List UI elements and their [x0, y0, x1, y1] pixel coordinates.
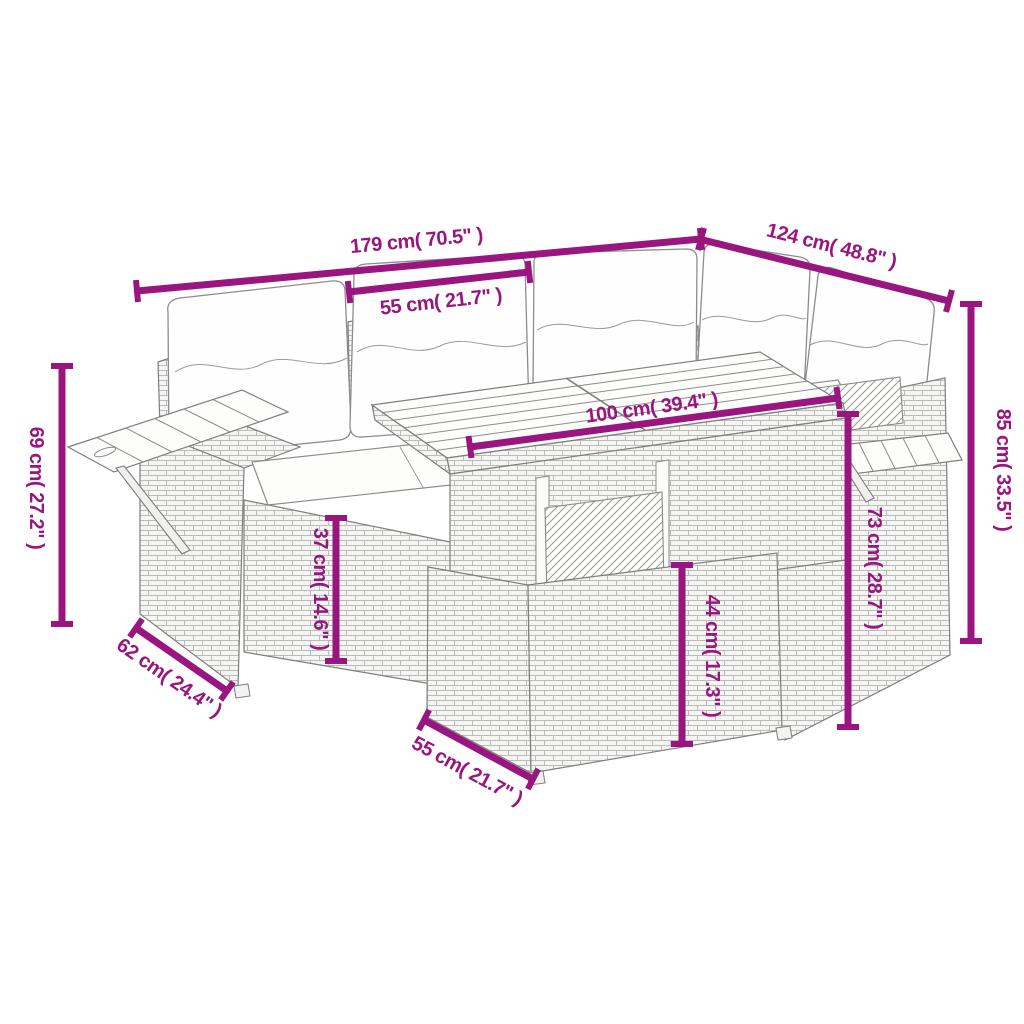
dimension-armrest-height: 69 cm( 27.2" ) — [25, 366, 73, 624]
dimension-label-table-height: 73 cm( 28.7" ) — [863, 507, 885, 630]
dimension-label-total-width: 179 cm( 70.5" ) — [349, 224, 484, 258]
ottoman-front-face — [528, 553, 782, 773]
ottoman-foot — [776, 726, 792, 740]
ottoman-left-face — [427, 567, 531, 773]
dimension-label-backrest-height: 85 cm( 33.5" ) — [992, 409, 1014, 532]
product-dimension-image: 179 cm( 70.5" ) 124 cm( 48.8" ) 55 cm( 2… — [0, 0, 1024, 1024]
dimension-label-stool-height: 44 cm( 17.3" ) — [701, 595, 723, 718]
dimension-label-armrest-height: 69 cm( 27.2" ) — [25, 427, 47, 550]
furniture-dimension-diagram: 179 cm( 70.5" ) 124 cm( 48.8" ) 55 cm( 2… — [0, 0, 1024, 1024]
dimension-label-seat-height: 37 cm( 14.6" ) — [309, 528, 331, 651]
armrest-front-left — [140, 427, 244, 688]
dimension-backrest-height: 85 cm( 33.5" ) — [960, 304, 1014, 641]
sofa-foot — [234, 684, 250, 698]
sofa-front-left — [244, 500, 455, 688]
